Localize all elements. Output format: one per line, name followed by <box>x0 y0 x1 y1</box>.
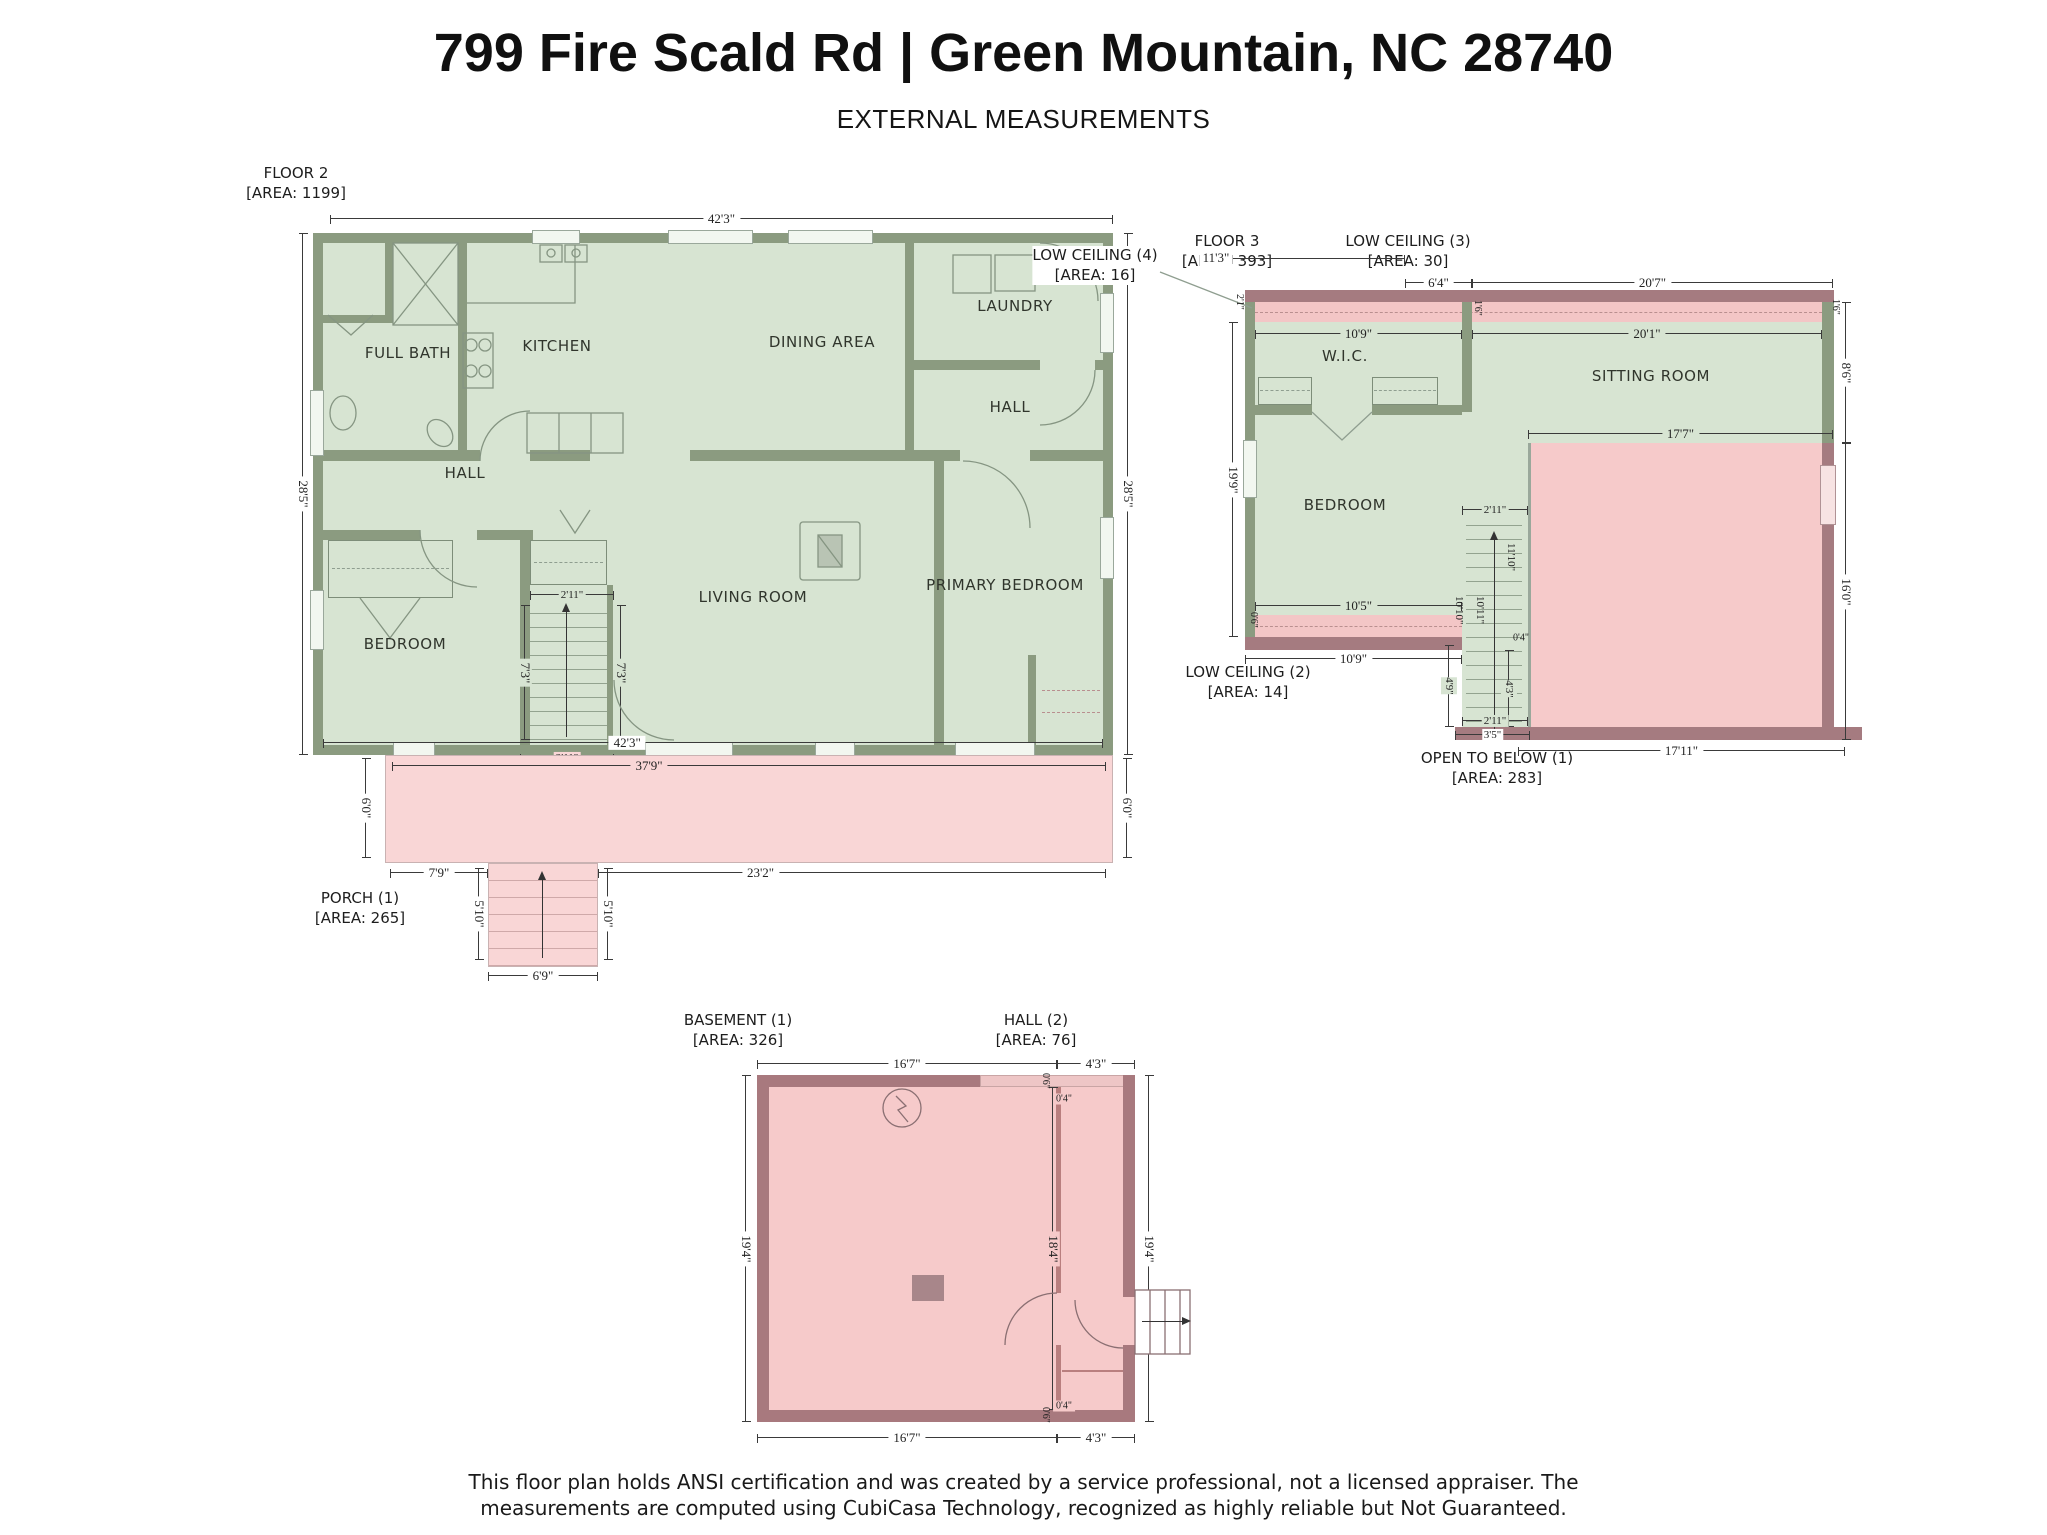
dim-floor3-left: 19'9" <box>1232 322 1233 637</box>
dim-floor3-right-upper: 8'6" <box>1845 302 1846 443</box>
dim-stair-mid: 10'11" <box>1474 596 1485 624</box>
floor2-name: FLOOR 2 <box>246 164 346 184</box>
dim-porch-left: 6'0" <box>365 758 366 858</box>
dim-sitting-width: 20'1" <box>1472 333 1822 334</box>
basement-hall-label: HALL (2) [AREA: 76] <box>996 1011 1077 1050</box>
dim-bedroom-width: 10'5" <box>1255 605 1462 606</box>
dim-porch-seg-right: 23'2" <box>598 872 1106 873</box>
dim-corner-right: 1'6" <box>1830 299 1840 315</box>
room-label-bedroom-floor3: BEDROOM <box>1304 496 1387 514</box>
dim-strip-height: 1'6" <box>1472 300 1482 316</box>
room-label-hall-lower: HALL <box>445 464 486 482</box>
floor2-area: [AREA: 1199] <box>246 184 346 204</box>
dim-steps-width: 6'9" <box>488 975 598 976</box>
dim-floor2-top: 42'3" <box>330 218 1113 219</box>
dim-bedroom-width-outer: 10'9" <box>1245 658 1462 659</box>
room-label-kitchen: KITCHEN <box>522 337 591 355</box>
room-label-dining-area: DINING AREA <box>769 333 875 351</box>
room-label-wic: W.I.C. <box>1322 347 1368 365</box>
page-subtitle: EXTERNAL MEASUREMENTS <box>837 104 1211 135</box>
dim-steps-right: 5'10" <box>607 868 608 960</box>
room-label-bedroom: BEDROOM <box>364 635 447 653</box>
dim-open-left-upper: 4'9" <box>1448 645 1449 727</box>
arrow-right-icon <box>1182 1317 1191 1325</box>
dim-porch-seg-left: 7'9" <box>390 872 488 873</box>
disclaimer-line1: This floor plan holds ANSI certification… <box>469 1470 1579 1494</box>
dim-wic-width: 10'9" <box>1255 333 1462 334</box>
dim-left-top-tiny: 2'1" <box>1234 294 1244 310</box>
dim-left-bottom-tiny: 0'6" <box>1248 612 1258 628</box>
basement-exit-arrow <box>1142 1321 1182 1322</box>
room-label-full-bath: FULL BATH <box>365 344 451 362</box>
floor2-label: FLOOR 2 [AREA: 1199] <box>246 164 346 203</box>
basement-label: BASEMENT (1) [AREA: 326] <box>684 1011 792 1050</box>
disclaimer-line2: measurements are computed using CubiCasa… <box>480 1496 1566 1520</box>
dim-floor3-right-lower: 16'0" <box>1845 443 1846 740</box>
room-label-sitting-room: SITTING ROOM <box>1592 367 1710 385</box>
page-title: 799 Fire Scald Rd | Green Mountain, NC 2… <box>434 22 1613 84</box>
dim-steps-left: 5'10" <box>478 868 479 960</box>
floor3-fixtures <box>1020 230 1880 790</box>
dim-floor2-left: 28'5" <box>302 233 303 755</box>
floor-plan-page: 799 Fire Scald Rd | Green Mountain, NC 2… <box>0 0 2047 1535</box>
dim-open-width-small: 2'11" <box>1462 720 1528 721</box>
basement-fixtures <box>750 1060 1210 1440</box>
steps-direction-arrow <box>542 880 543 958</box>
dim-porch-width: 37'9" <box>392 765 1106 766</box>
low-ceiling-2-label: LOW CEILING (2) [AREA: 14] <box>1185 663 1310 702</box>
dim-stair-left: 10'10" <box>1453 596 1464 624</box>
open-to-below-label: OPEN TO BELOW (1) [AREA: 283] <box>1421 749 1573 788</box>
dim-open-top: 17'7" <box>1528 433 1833 434</box>
porch-deck <box>385 755 1113 863</box>
room-label-living-room: LIVING ROOM <box>699 588 808 606</box>
dim-basement-left: 19'4" <box>745 1075 746 1422</box>
dim-stair-right: 11'10" <box>1505 543 1516 571</box>
porch-label: PORCH (1) [AREA: 265] <box>315 889 405 928</box>
dim-open-width-small2: 3'5" <box>1455 734 1530 735</box>
dim-floor2-bottom: 42'3" <box>323 742 1103 743</box>
dim-stair-small: 0'4" <box>1510 633 1532 644</box>
arrow-up-icon <box>538 871 546 880</box>
